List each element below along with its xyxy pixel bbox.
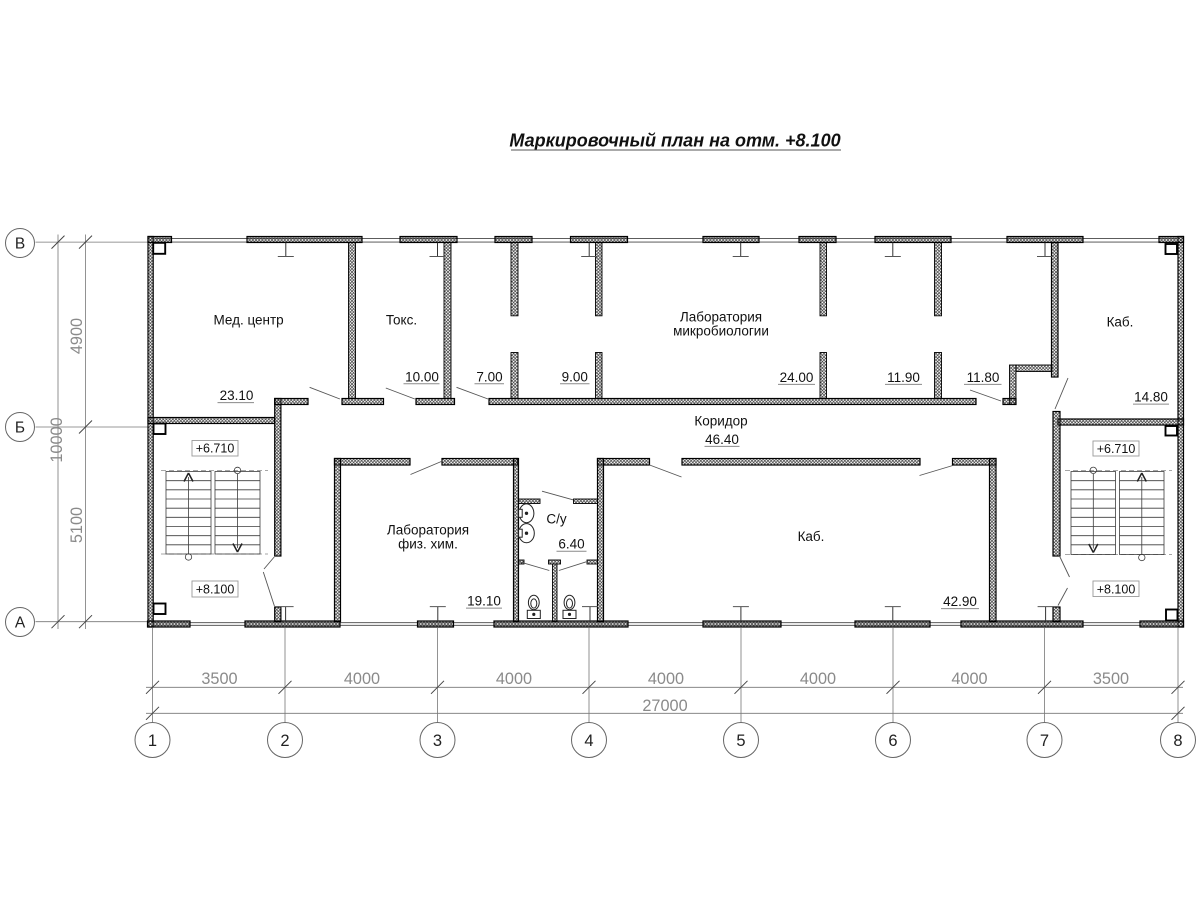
svg-text:4: 4 <box>584 732 593 750</box>
svg-text:42.90: 42.90 <box>943 594 977 609</box>
svg-text:46.40: 46.40 <box>705 432 739 447</box>
svg-text:Каб.: Каб. <box>798 529 825 544</box>
svg-text:Б: Б <box>15 420 25 437</box>
svg-text:Токс.: Токс. <box>386 313 417 328</box>
svg-text:10000: 10000 <box>48 417 66 462</box>
svg-text:5100: 5100 <box>68 507 86 543</box>
svg-text:4000: 4000 <box>951 670 987 688</box>
svg-text:19.10: 19.10 <box>467 594 501 609</box>
svg-text:3: 3 <box>433 732 442 750</box>
svg-text:В: В <box>15 236 25 253</box>
svg-text:+6.710: +6.710 <box>1097 442 1136 456</box>
svg-text:8: 8 <box>1173 732 1182 750</box>
svg-text:6.40: 6.40 <box>558 537 584 552</box>
svg-text:9.00: 9.00 <box>562 369 588 384</box>
svg-text:4000: 4000 <box>344 670 380 688</box>
svg-text:Коридор: Коридор <box>694 414 747 429</box>
svg-text:7: 7 <box>1040 732 1049 750</box>
svg-text:5: 5 <box>736 732 745 750</box>
svg-text:4900: 4900 <box>68 318 86 354</box>
svg-text:14.80: 14.80 <box>1134 390 1168 405</box>
svg-text:3500: 3500 <box>1093 670 1129 688</box>
svg-text:2: 2 <box>280 732 289 750</box>
svg-text:микробиологии: микробиологии <box>673 324 769 339</box>
svg-text:1: 1 <box>148 732 157 750</box>
svg-text:11.90: 11.90 <box>887 370 920 385</box>
svg-text:Маркировочный план на отм. +8.: Маркировочный план на отм. +8.100 <box>509 131 840 151</box>
svg-text:3500: 3500 <box>201 670 237 688</box>
svg-text:+8.100: +8.100 <box>196 583 235 597</box>
svg-text:23.10: 23.10 <box>220 388 254 403</box>
svg-text:+6.710: +6.710 <box>196 442 235 456</box>
svg-text:+8.100: +8.100 <box>1097 583 1136 597</box>
svg-text:24.00: 24.00 <box>780 370 814 385</box>
svg-text:7.00: 7.00 <box>476 369 502 384</box>
svg-text:Каб.: Каб. <box>1107 315 1134 330</box>
svg-text:11.80: 11.80 <box>967 370 1000 385</box>
svg-text:4000: 4000 <box>496 670 532 688</box>
svg-text:6: 6 <box>888 732 897 750</box>
svg-text:10.00: 10.00 <box>405 369 439 384</box>
svg-text:Мед. центр: Мед. центр <box>213 313 283 328</box>
svg-text:физ. хим.: физ. хим. <box>398 537 458 552</box>
svg-text:А: А <box>15 615 26 632</box>
svg-text:4000: 4000 <box>648 670 684 688</box>
svg-text:Лаборатория: Лаборатория <box>680 310 762 325</box>
svg-text:С/у: С/у <box>546 512 567 527</box>
svg-text:27000: 27000 <box>642 697 687 715</box>
svg-text:Лаборатория: Лаборатория <box>387 523 469 538</box>
svg-text:4000: 4000 <box>800 670 836 688</box>
